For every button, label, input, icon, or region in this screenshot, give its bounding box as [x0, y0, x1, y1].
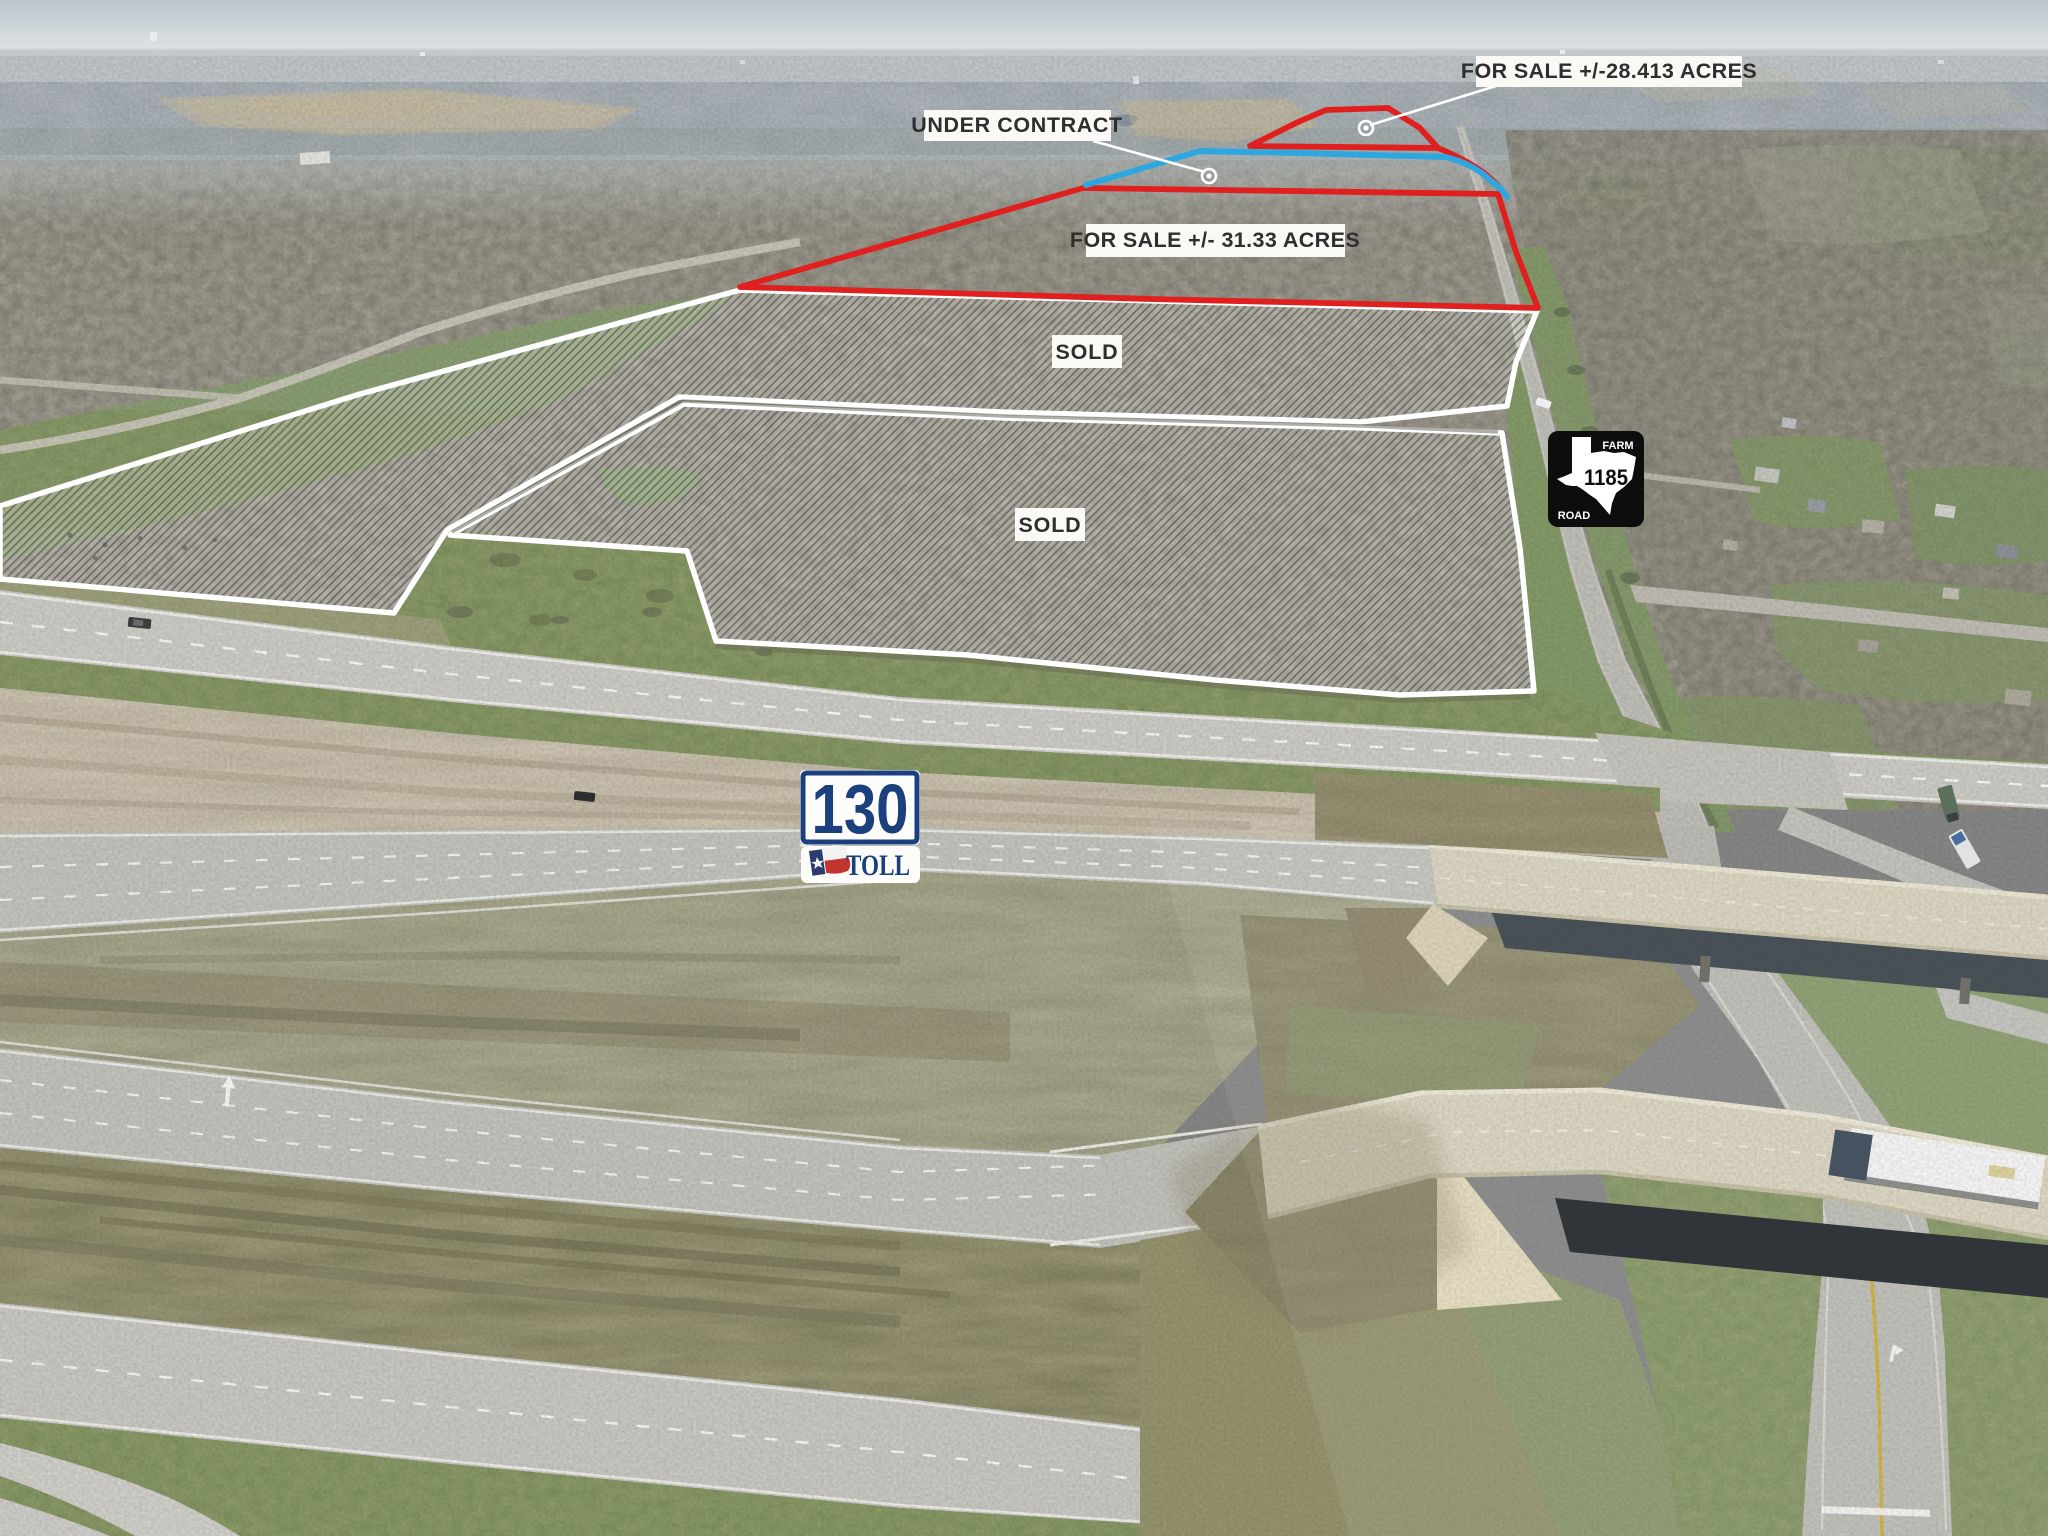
- svg-text:FOR SALE +/- 31.33 ACRES: FOR SALE +/- 31.33 ACRES: [1070, 228, 1360, 252]
- svg-text:UNDER CONTRACT: UNDER CONTRACT: [911, 113, 1122, 137]
- svg-text:1185: 1185: [1584, 465, 1628, 490]
- svg-text:FOR SALE +/-28.413 ACRES: FOR SALE +/-28.413 ACRES: [1461, 59, 1757, 83]
- svg-text:SOLD: SOLD: [1019, 513, 1082, 537]
- svg-text:130: 130: [812, 770, 909, 848]
- svg-text:ROAD: ROAD: [1558, 510, 1590, 522]
- svg-text:TOLL: TOLL: [846, 849, 910, 882]
- svg-text:SOLD: SOLD: [1056, 340, 1119, 364]
- svg-text:FARM: FARM: [1602, 440, 1633, 452]
